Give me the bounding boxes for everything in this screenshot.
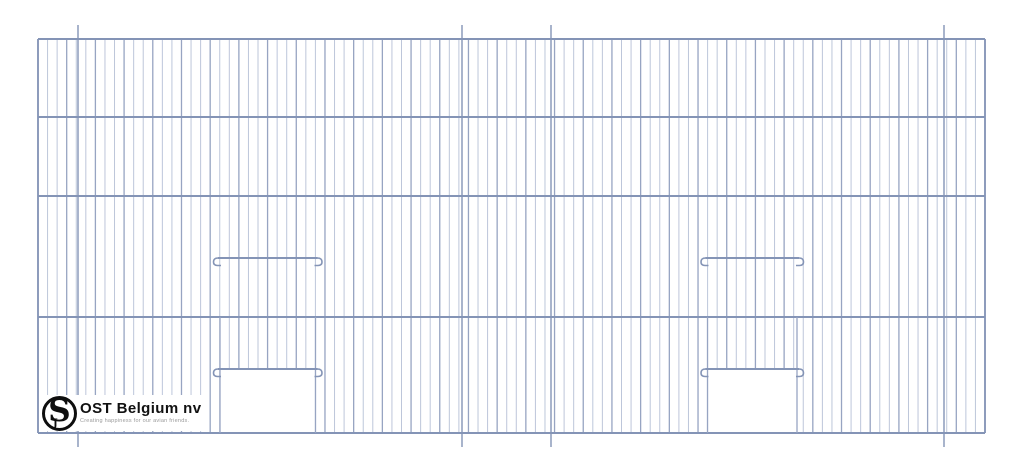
drawing-page: S J OST Belgium nv Creating happiness fo… bbox=[0, 0, 1024, 473]
ost-monogram-icon: S J bbox=[42, 396, 77, 431]
monogram-letter: S bbox=[48, 396, 70, 427]
monogram-small-letter: J bbox=[53, 419, 58, 429]
brand-text-block: OST Belgium nv Creating happiness for ou… bbox=[80, 401, 201, 425]
brand-logo: S J OST Belgium nv Creating happiness fo… bbox=[40, 395, 209, 431]
brand-name: OST Belgium nv bbox=[80, 401, 201, 417]
brand-tagline: Creating happiness for our avian friends… bbox=[80, 418, 201, 425]
